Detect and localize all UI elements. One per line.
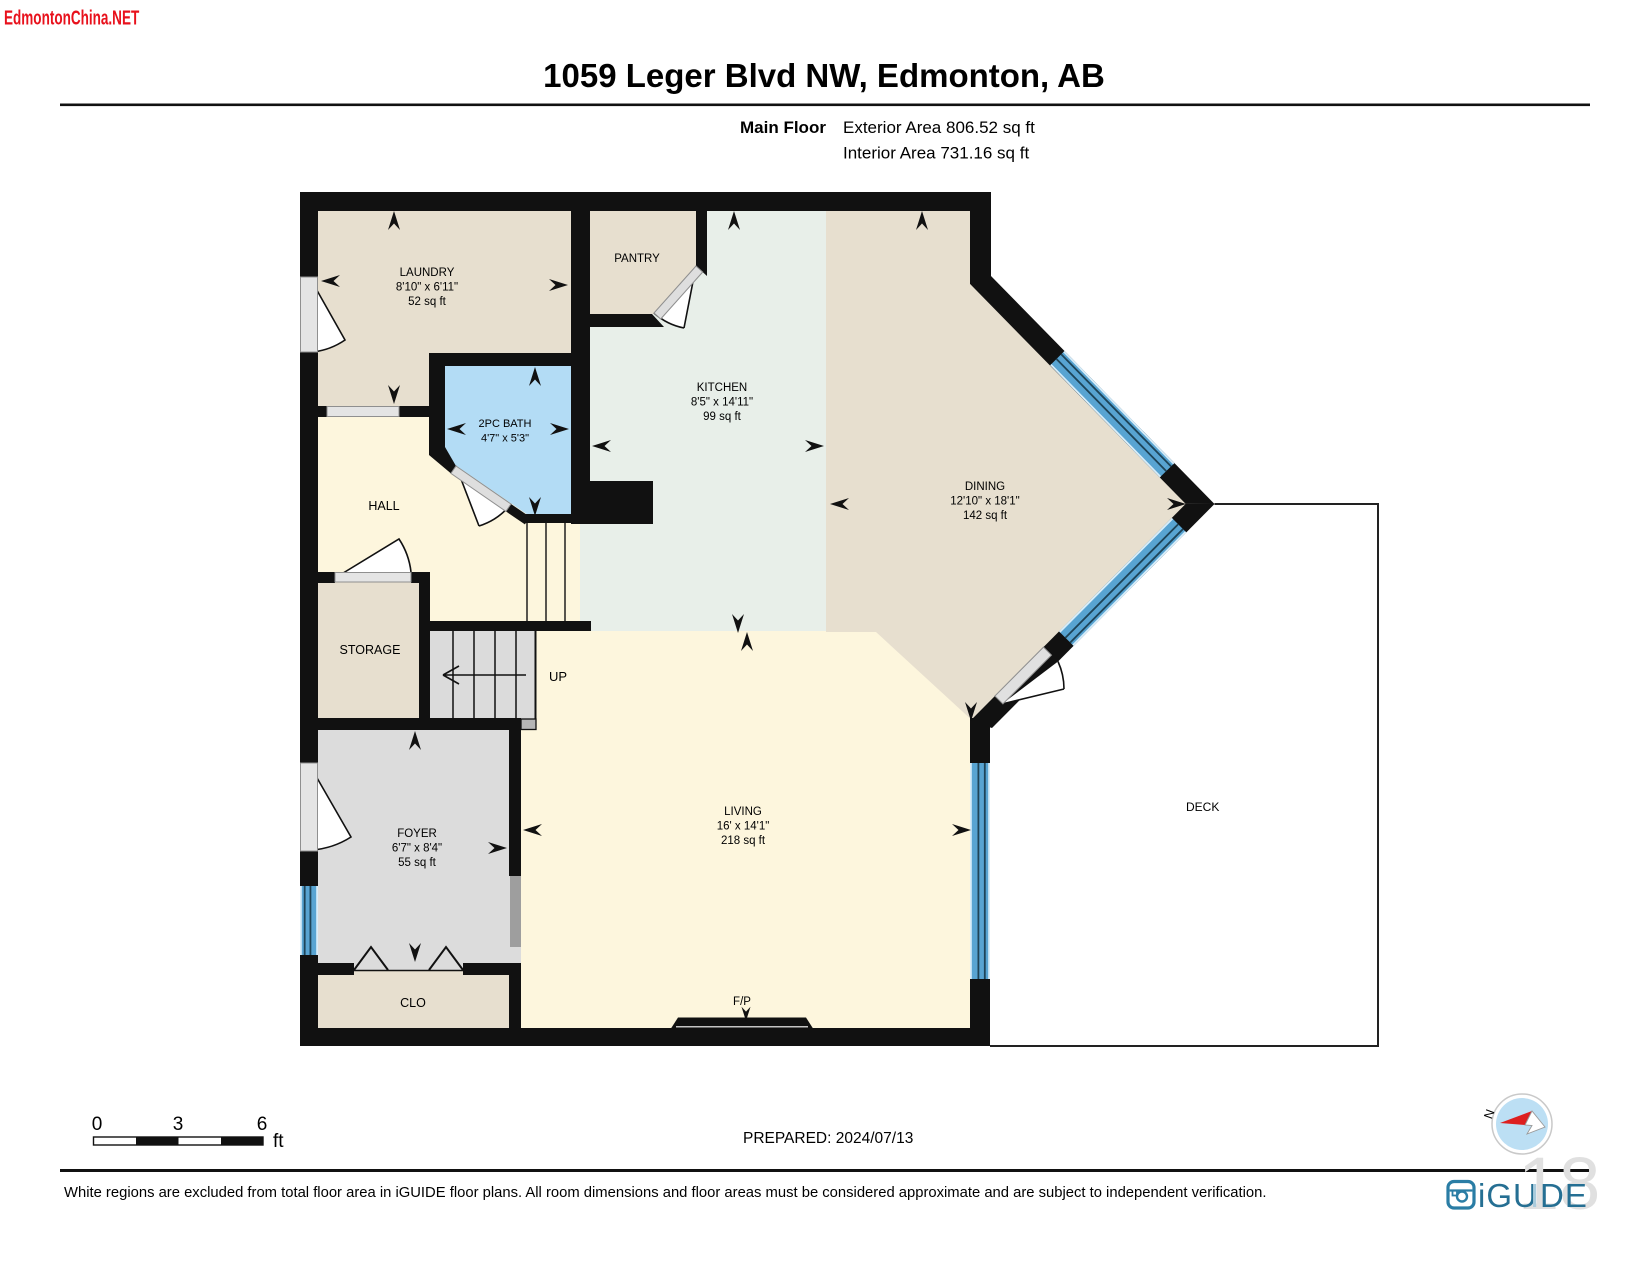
- svg-text:EdmontonChina.NET: EdmontonChina.NET: [4, 6, 140, 30]
- svg-text:DINING: DINING: [965, 481, 1005, 493]
- svg-text:UP: UP: [549, 669, 567, 684]
- svg-text:3: 3: [173, 1114, 184, 1135]
- svg-text:52 sq ft: 52 sq ft: [408, 296, 447, 308]
- svg-text:Exterior Area 806.52 sq ft: Exterior Area 806.52 sq ft: [843, 118, 1035, 137]
- svg-text:DE: DE: [1540, 1177, 1588, 1214]
- svg-text:F/P: F/P: [733, 996, 751, 1008]
- svg-text:Interior Area 731.16 sq ft: Interior Area 731.16 sq ft: [843, 144, 1029, 163]
- svg-text:55 sq ft: 55 sq ft: [398, 857, 437, 869]
- svg-text:6: 6: [257, 1114, 268, 1135]
- svg-text:0: 0: [92, 1114, 103, 1135]
- svg-text:8'5" x 14'11": 8'5" x 14'11": [691, 397, 753, 409]
- svg-text:White regions are excluded fro: White regions are excluded from total fl…: [64, 1185, 1266, 1201]
- svg-text:ft: ft: [273, 1131, 284, 1152]
- svg-text:LIVING: LIVING: [724, 806, 762, 818]
- svg-text:12'10" x 18'1": 12'10" x 18'1": [950, 496, 1019, 508]
- svg-text:HALL: HALL: [368, 499, 399, 513]
- svg-text:STORAGE: STORAGE: [340, 643, 401, 657]
- svg-text:8'10" x 6'11": 8'10" x 6'11": [396, 282, 458, 294]
- svg-text:LAUNDRY: LAUNDRY: [400, 267, 455, 279]
- svg-text:FOYER: FOYER: [397, 828, 437, 840]
- svg-text:Main Floor: Main Floor: [740, 118, 826, 137]
- svg-text:CLO: CLO: [400, 996, 426, 1010]
- svg-text:1059 Leger Blvd NW, Edmonton,: 1059 Leger Blvd NW, Edmonton, AB: [543, 57, 1105, 94]
- svg-text:DECK: DECK: [1186, 800, 1219, 814]
- svg-text:6'7" x 8'4": 6'7" x 8'4": [392, 843, 442, 855]
- svg-text:I: I: [1530, 1177, 1539, 1214]
- svg-text:KITCHEN: KITCHEN: [697, 382, 747, 394]
- svg-text:99 sq ft: 99 sq ft: [703, 411, 742, 423]
- svg-text:PANTRY: PANTRY: [614, 253, 660, 265]
- svg-text:PREPARED: 2024/07/13: PREPARED: 2024/07/13: [743, 1130, 913, 1147]
- svg-text:218 sq ft: 218 sq ft: [721, 835, 766, 847]
- svg-text:4'7" x 5'3": 4'7" x 5'3": [481, 433, 529, 445]
- svg-text:16' x 14'1": 16' x 14'1": [717, 821, 770, 833]
- svg-text:iGU: iGU: [1478, 1177, 1538, 1214]
- svg-text:2PC BATH: 2PC BATH: [479, 418, 532, 430]
- svg-text:142 sq ft: 142 sq ft: [963, 510, 1008, 522]
